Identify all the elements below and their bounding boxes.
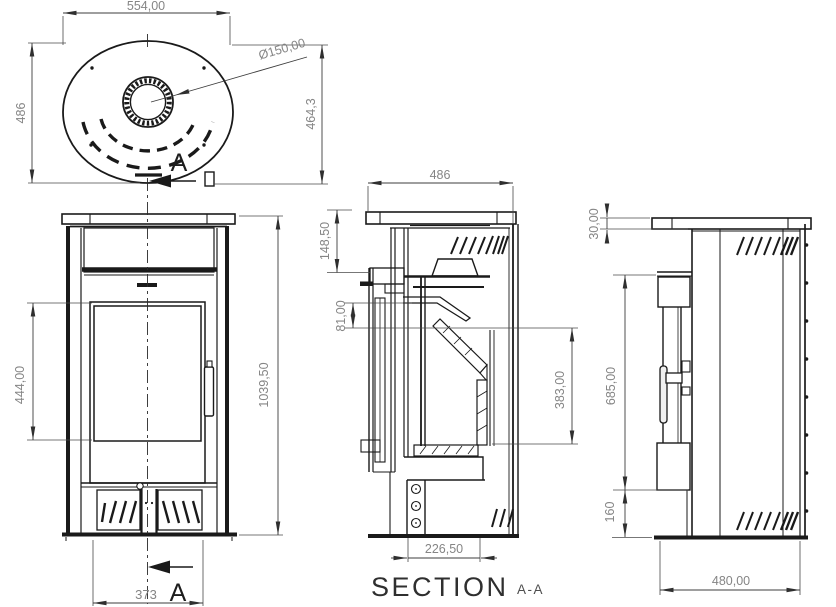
dim-deflector-offset: 81,00 [334,300,348,331]
section-top-plate [366,212,516,224]
dim-top-depth: 486 [14,103,28,124]
dim-flue-diameter: Ø150,00 [257,36,307,63]
front-view: A [62,214,237,607]
side-top-plate [652,218,811,229]
firebox-floor [414,445,478,456]
side-door-top [658,277,690,307]
dim-door-bottom-height: 160 [603,502,617,523]
side-door-bottom [657,443,690,490]
section-lintel [370,268,404,284]
flue-baffle-collar [432,259,478,276]
firebrick-baffle [433,319,487,445]
top-view: A [63,34,233,188]
section-ash-lip [361,440,380,452]
top-screw-dot [90,66,93,69]
side-slots-lower [737,512,798,530]
deflector-plate [403,297,470,321]
section-cut-arrow-front [148,561,170,574]
flue-collar-ring [127,81,170,124]
flue-collar-inner [130,84,165,119]
front-left-column [66,226,70,535]
top-vent-slots-outer [83,122,213,168]
section-label: SECTION [371,572,509,602]
dim-glass-height: 444,00 [13,366,27,404]
top-screw-dot [202,143,205,146]
section-label-suffix: A-A [517,582,544,597]
dim-door-top-height: 685,00 [604,367,618,405]
side-view [652,218,811,538]
section-slots-upper [451,236,508,254]
dim-depth: 480,00 [712,574,750,588]
dim-section-width: 486 [430,168,451,182]
side-hinge-block [682,387,690,395]
damper-knob [205,172,214,186]
dim-top-width: 554,00 [127,0,165,13]
front-top-plate [62,214,235,224]
stove-dimension-drawing: A 554,00 486 464,3 Ø150,00 [0,0,836,607]
vent-hinge [137,483,143,489]
dim-plate-thickness: 30,00 [587,208,601,239]
dim-base-width: 373 [135,587,157,602]
side-hinge-block [682,361,690,372]
flue-leader-line [176,57,307,95]
dim-section-base-width: 226,50 [425,542,463,556]
front-door-handle-nub [207,361,212,367]
technical-drawing-page: A 554,00 486 464,3 Ø150,00 [0,0,836,607]
plinth-step [404,457,485,480]
dim-total-height: 1039,50 [257,362,271,407]
side-door-handle-arm [666,373,682,383]
top-screw-dot [202,66,205,69]
section-view [360,212,519,537]
vent-slots-right [163,501,199,523]
section-slots-lower [492,509,513,527]
side-slots-upper [737,237,798,255]
section-letter-top: A [171,149,188,177]
dim-firebox-height: 383,00 [553,371,567,409]
front-right-column [225,226,229,535]
dim-top-diagonal: 464,3 [304,98,318,129]
vent-slots-left [102,501,136,523]
front-upper-panel [84,228,214,272]
top-plate-outline [63,41,233,183]
front-door-handle [205,367,214,416]
dim-plate-offset: 148,50 [318,222,332,260]
